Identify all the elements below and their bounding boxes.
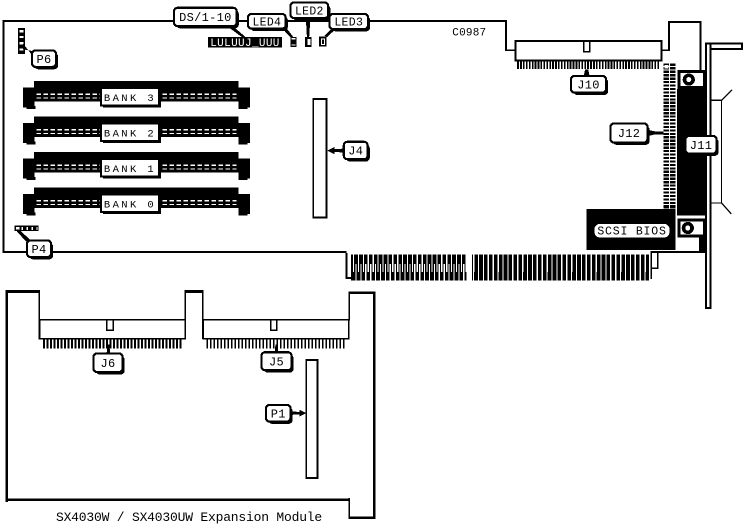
svg-text:BANK 1: BANK 1 (104, 164, 156, 176)
svg-text:J10: J10 (577, 79, 600, 93)
svg-text:P4: P4 (31, 243, 46, 257)
svg-text:BANK 2: BANK 2 (104, 129, 156, 141)
svg-text:LULUUJ_UUU: LULUUJ_UUU (210, 38, 280, 50)
svg-text:J6: J6 (100, 357, 115, 371)
svg-text:J12: J12 (618, 127, 641, 141)
svg-text:P1: P1 (271, 407, 286, 421)
svg-text:J4: J4 (348, 145, 363, 159)
svg-text:P6: P6 (36, 53, 51, 67)
svg-text:LED2: LED2 (295, 5, 324, 18)
svg-text:J11: J11 (690, 139, 713, 153)
svg-text:BANK 0: BANK 0 (104, 200, 156, 212)
svg-text:LED4: LED4 (252, 16, 281, 29)
svg-text:SX4030W / SX4030UW Expansion M: SX4030W / SX4030UW Expansion Module (56, 510, 322, 525)
svg-text:LED3: LED3 (334, 17, 363, 30)
svg-text:DS/1-10: DS/1-10 (179, 11, 232, 25)
svg-text:BANK 3: BANK 3 (104, 93, 156, 105)
svg-text:C0987: C0987 (452, 28, 486, 40)
svg-text:J5: J5 (269, 355, 284, 369)
svg-text:SCSI BIOS: SCSI BIOS (597, 225, 666, 238)
